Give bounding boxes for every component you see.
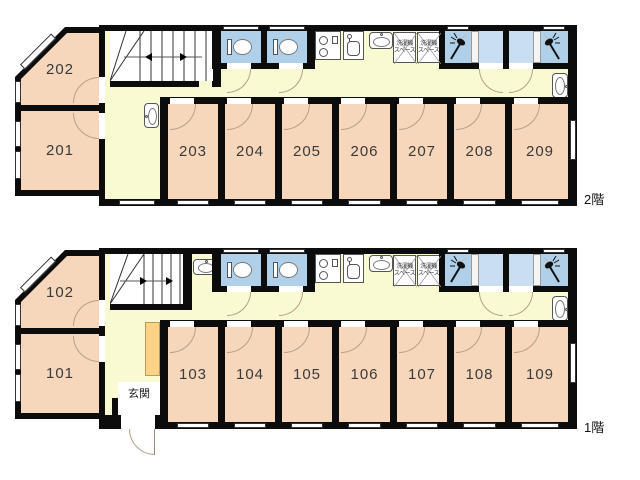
burner <box>319 36 328 45</box>
shower-icon <box>541 254 565 286</box>
stairs-icon <box>110 31 213 81</box>
toilet-icon <box>273 39 278 55</box>
door-opening <box>99 300 105 326</box>
stair-wall <box>183 248 192 310</box>
room-divider <box>505 320 512 429</box>
room-divider <box>218 320 225 429</box>
toilet-room <box>221 31 261 63</box>
burner <box>319 48 328 57</box>
stair-wall <box>110 304 192 310</box>
floor-plan-2f: 202 201 <box>15 25 595 240</box>
window-icon <box>463 423 496 428</box>
room-label: 205 <box>293 143 321 160</box>
entrance-label: 玄関 <box>118 386 160 400</box>
washbasin-icon <box>552 296 568 321</box>
room-divider <box>332 97 339 206</box>
window-icon <box>291 423 323 428</box>
kitchen-sink-icon <box>343 254 364 283</box>
window-icon <box>570 343 576 383</box>
basin <box>148 108 157 125</box>
floor-label-2f: 2階 <box>584 189 604 208</box>
window-icon <box>543 26 565 30</box>
washbasin-icon <box>144 103 159 128</box>
room-divider <box>447 320 454 429</box>
entrance-opening <box>121 415 155 429</box>
room-row-wall <box>160 320 168 429</box>
shower-stall <box>445 31 471 63</box>
room-divider <box>390 97 397 206</box>
washer-space-label: スペース <box>394 271 415 278</box>
washer-space-icon: 洗濯機 スペース <box>393 32 416 63</box>
washbasin-icon <box>369 255 393 272</box>
toilet-icon <box>233 262 252 278</box>
shower-fold-door <box>533 254 541 286</box>
faucet <box>349 261 350 265</box>
washer-space-icon: 洗濯機 スペース <box>417 32 440 63</box>
window-icon <box>291 200 323 205</box>
faucet <box>205 260 208 263</box>
window-icon <box>223 249 259 253</box>
room-label: 209 <box>526 143 554 160</box>
basin <box>373 260 390 270</box>
door-opening <box>99 113 105 139</box>
stair-wall <box>110 81 212 87</box>
stair-opening <box>199 81 212 87</box>
room-label: 201 <box>46 142 74 159</box>
window-icon <box>406 423 438 428</box>
shower-fold-door <box>471 31 479 63</box>
shower-stall <box>541 31 568 63</box>
room-label: 105 <box>293 366 321 383</box>
room-label: 109 <box>526 366 554 383</box>
shower-stall <box>445 254 471 286</box>
window-icon <box>406 200 438 205</box>
room-divider <box>218 97 225 206</box>
basin <box>555 77 565 95</box>
window-icon <box>177 423 209 428</box>
door-opening <box>99 336 105 362</box>
room-label: 106 <box>350 366 378 383</box>
washbasin-icon <box>369 32 393 49</box>
room-label: 204 <box>236 143 264 160</box>
toilet-icon <box>227 262 232 278</box>
shower-icon <box>541 31 565 63</box>
stove-icon <box>315 254 341 283</box>
window-icon <box>269 249 305 253</box>
window-icon <box>447 249 469 253</box>
stove-detail <box>332 36 338 44</box>
room-divider <box>447 97 454 206</box>
toilet-icon <box>279 262 298 278</box>
shower-icon <box>445 31 469 63</box>
floorplan-canvas: 202 201 <box>0 0 640 480</box>
stairs-icon <box>110 254 183 304</box>
washer-space-label: スペース <box>394 48 415 55</box>
washer-space-label: 洗濯機 <box>396 264 413 271</box>
window-icon <box>223 26 259 30</box>
shower-wall <box>445 286 568 292</box>
washer-space-label: 洗濯機 <box>396 41 413 48</box>
window-icon <box>521 200 559 205</box>
window-icon <box>521 423 559 428</box>
shower-fold-door <box>533 31 541 63</box>
shower-entry <box>509 254 533 286</box>
shower-entry <box>479 254 503 286</box>
window-icon <box>570 120 576 160</box>
room-label: 103 <box>179 366 207 383</box>
faucet <box>380 256 383 259</box>
toilet-icon <box>279 39 298 55</box>
room-row-wall <box>160 97 168 206</box>
floor-label-1f: 1階 <box>584 417 604 436</box>
toilet-room <box>267 31 307 63</box>
entrance-door-leaf <box>154 429 155 455</box>
washer-space-label: スペース <box>418 271 439 278</box>
room-divider <box>332 320 339 429</box>
shower-icon <box>445 254 469 286</box>
window-icon <box>348 200 381 205</box>
window-icon <box>234 200 266 205</box>
floor-plan-1f: 102 101 <box>15 248 595 463</box>
room-label: 207 <box>408 143 436 160</box>
window-icon <box>119 200 155 205</box>
window-icon <box>348 423 381 428</box>
kitchen-sink-icon <box>343 31 364 60</box>
room-label: 108 <box>465 366 493 383</box>
shower-entry <box>509 31 533 63</box>
burner <box>319 259 328 268</box>
shower-stall <box>541 254 568 286</box>
window-icon <box>269 26 305 30</box>
room-divider <box>275 320 282 429</box>
entrance-door-arc <box>129 429 155 455</box>
window-icon <box>234 423 266 428</box>
room-label: 203 <box>179 143 207 160</box>
window-icon <box>447 26 469 30</box>
washer-space-icon: 洗濯機 スペース <box>417 255 440 286</box>
toilet-icon <box>233 39 252 55</box>
room-label: 202 <box>46 61 74 78</box>
room-divider <box>505 97 512 206</box>
shower-wall <box>445 63 568 69</box>
basin <box>555 300 565 318</box>
stove-detail <box>332 259 338 267</box>
washer-space-label: スペース <box>418 48 439 55</box>
room-divider <box>390 320 397 429</box>
washer-space-label: 洗濯機 <box>420 41 437 48</box>
washbasin-icon <box>552 73 568 98</box>
room-label: 206 <box>350 143 378 160</box>
sink-basin <box>347 41 360 56</box>
toilet-room <box>221 254 261 286</box>
window-icon <box>543 249 565 253</box>
faucet <box>380 33 383 36</box>
sink-basin <box>347 264 360 279</box>
room-label: 101 <box>46 365 74 382</box>
room-label: 208 <box>465 143 493 160</box>
shower-fold-door <box>471 254 479 286</box>
stove-icon <box>315 31 341 60</box>
faucet <box>349 38 350 42</box>
faucet <box>565 308 568 311</box>
toilet-icon <box>227 39 232 55</box>
room-label: 107 <box>408 366 436 383</box>
shower-entry <box>479 31 503 63</box>
toilet-room <box>267 254 307 286</box>
shoe-cabinet <box>145 322 160 376</box>
window-icon <box>177 200 209 205</box>
toilet-icon <box>273 262 278 278</box>
room-divider <box>275 97 282 206</box>
room-label: 102 <box>46 284 74 301</box>
faucet <box>145 115 148 118</box>
window-icon <box>463 200 496 205</box>
room-label: 104 <box>236 366 264 383</box>
basin <box>373 37 390 47</box>
faucet <box>565 85 568 88</box>
washer-space-label: 洗濯機 <box>420 264 437 271</box>
washer-space-icon: 洗濯機 スペース <box>393 255 416 286</box>
door-opening <box>99 77 105 103</box>
burner <box>319 271 328 280</box>
